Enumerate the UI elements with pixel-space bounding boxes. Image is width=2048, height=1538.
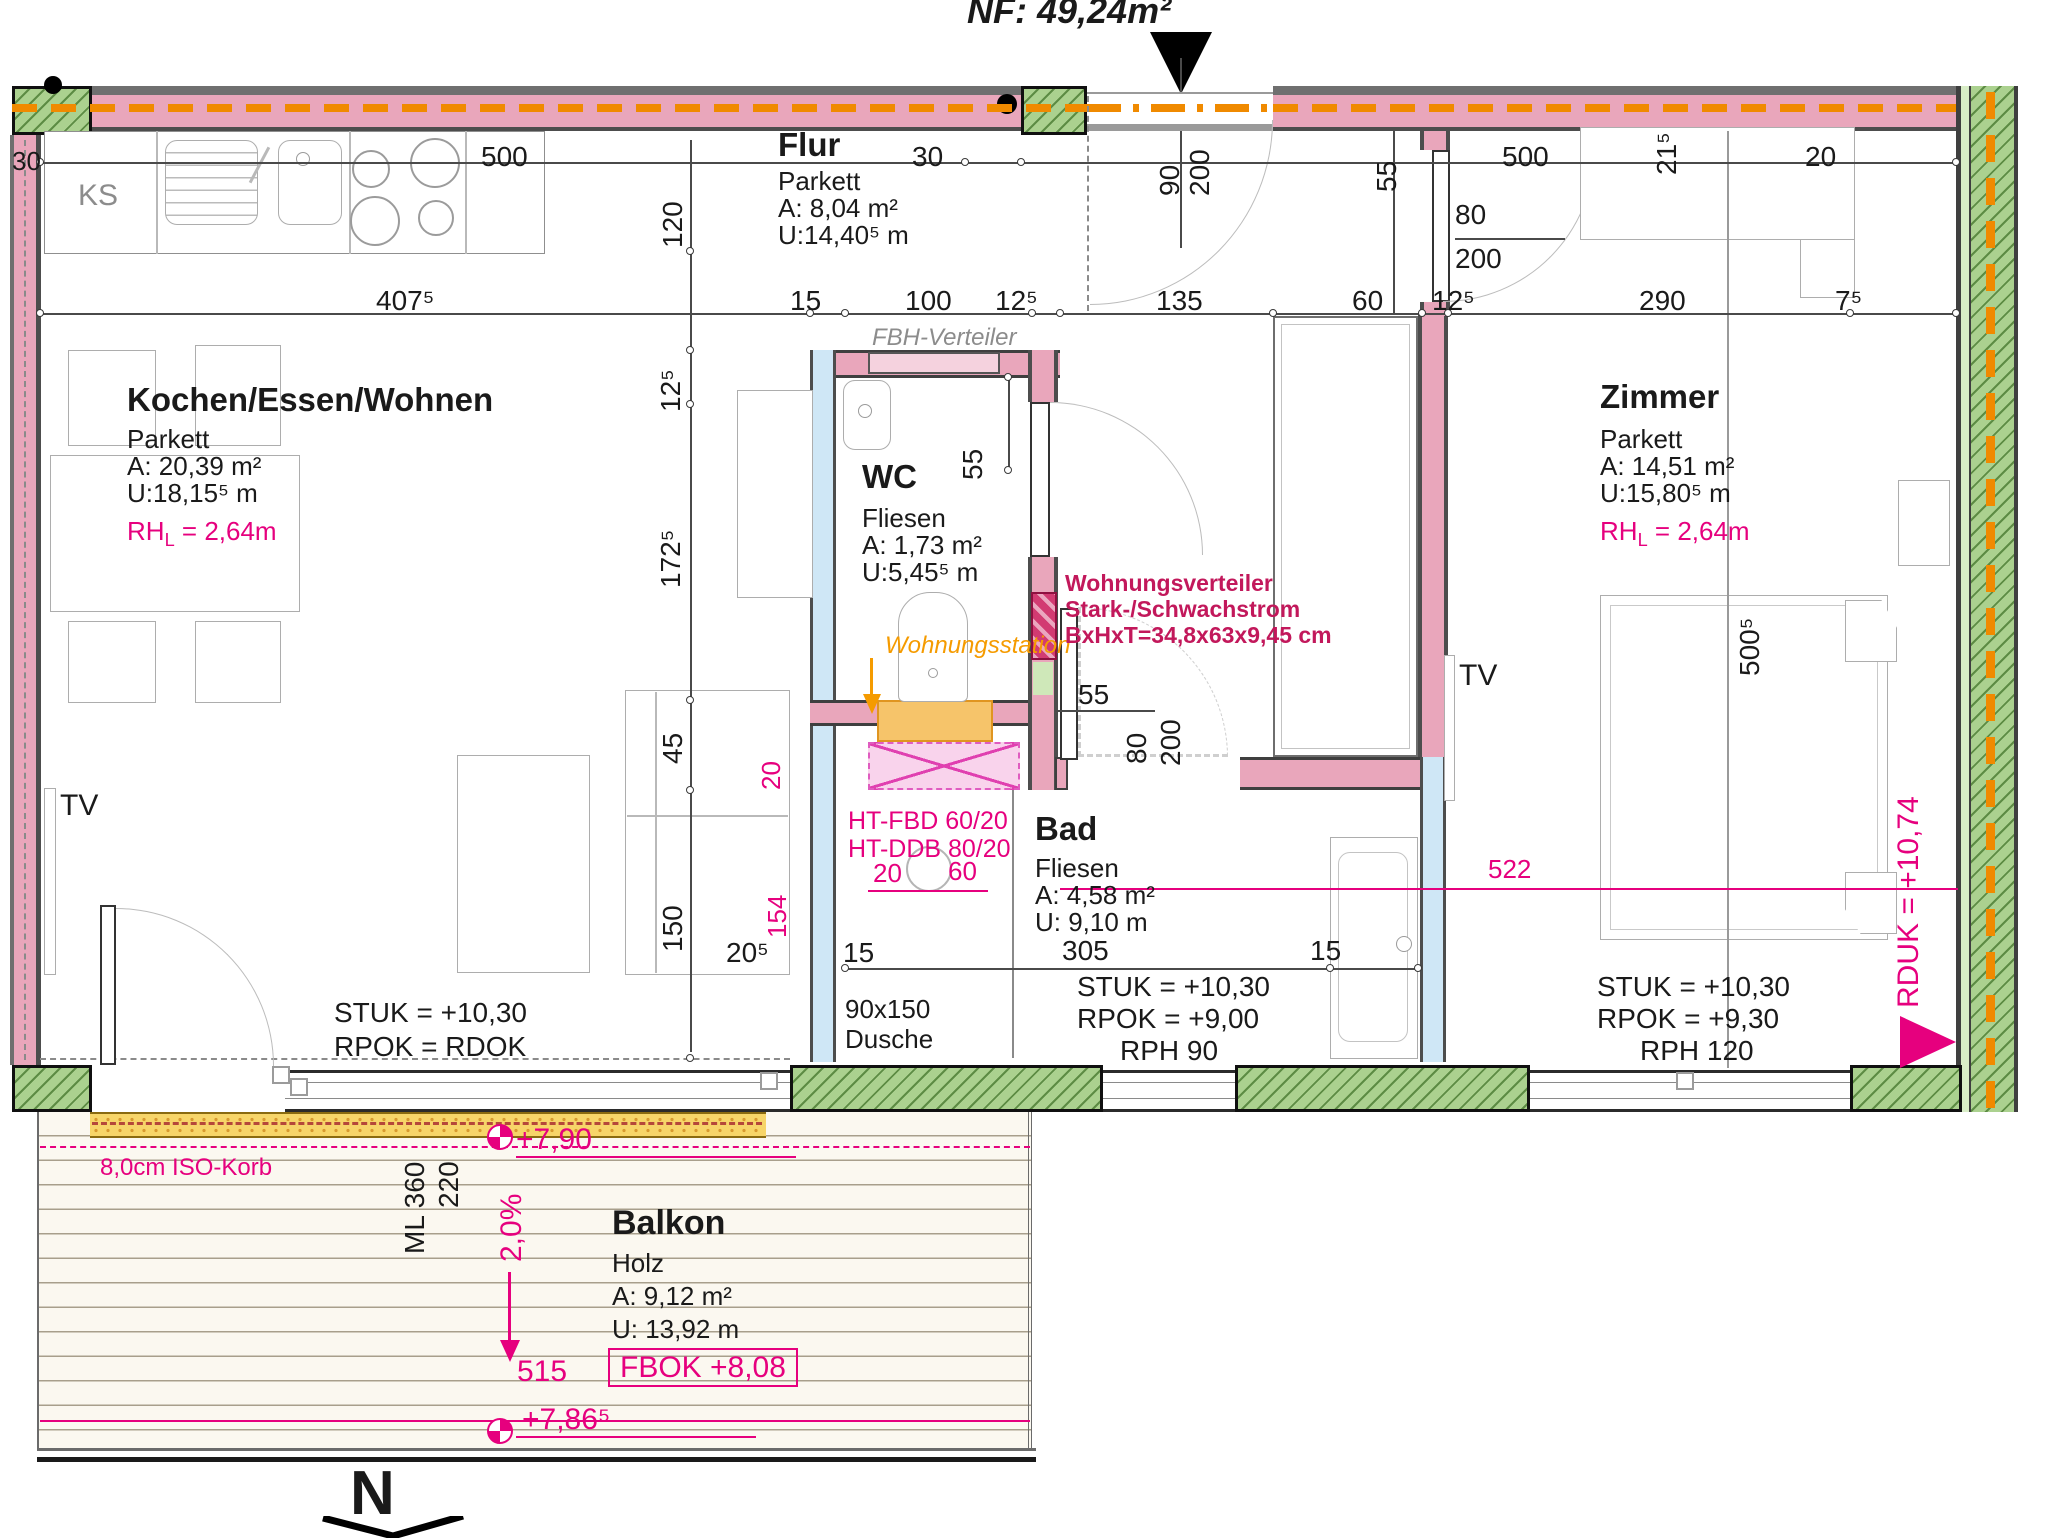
dim-45: 45: [658, 733, 687, 764]
wohnungsstation-arrow-head: [863, 694, 881, 714]
rduk-label: RDUK = +10,74: [1893, 796, 1924, 1008]
dim-tick: [1418, 309, 1426, 317]
room-zimmer-rh: RHL = 2,64m: [1600, 518, 1750, 550]
dim-frac-line: [1455, 238, 1565, 240]
fbh-label: FBH-Verteiler: [872, 326, 1016, 351]
room-zimmer-perimeter: U:15,80⁵ m: [1600, 480, 1731, 507]
room-wohnen-floor: Parkett: [127, 426, 209, 453]
entry-axis-dashed: [1087, 96, 1089, 311]
level-7865: +7,86⁵: [522, 1404, 610, 1435]
dim-125-a: 12⁵: [995, 286, 1038, 315]
dim-220: 220: [434, 1161, 463, 1208]
shower-label: Dusche: [845, 1026, 933, 1053]
room-bad-floor: Fliesen: [1035, 855, 1119, 882]
dim-100: 100: [905, 286, 952, 315]
window-frame-mark: [1676, 1072, 1694, 1090]
dim-tick: [1017, 158, 1025, 166]
dim-154: 154: [764, 895, 791, 938]
floor-plan: NF: 49,24m²: [0, 0, 2048, 1538]
dim-tick: [686, 1054, 694, 1062]
verteiler-note-3: BxHxT=34,8x63x9,45 cm: [1065, 624, 1332, 648]
fridge-label: KS: [78, 180, 118, 211]
level-790-line: [516, 1156, 796, 1158]
room-flur-title: Flur: [778, 128, 840, 162]
dim-tick: [686, 346, 694, 354]
room-bad-title: Bad: [1035, 812, 1097, 846]
room-flur-floor: Parkett: [778, 168, 860, 195]
kitchen-divider: [465, 131, 467, 254]
axis-orange-line-top-left: [12, 104, 1087, 112]
wohnungsstation-arrow-line: [870, 658, 873, 696]
sofa-cushion-line: [627, 815, 788, 817]
axis-orange-line-top-right: [1273, 104, 2016, 112]
dim-1725: 172⁵: [656, 530, 685, 588]
dim-tick: [1414, 964, 1422, 972]
wall-left-axis: [24, 140, 26, 1060]
dim-tick: [1952, 309, 1960, 317]
wall-bad-top: [1240, 757, 1422, 790]
dining-chair: [68, 621, 156, 703]
toilet-detail: [928, 668, 938, 678]
room-wohnen-title: Kochen/Essen/Wohnen: [127, 383, 493, 417]
room-wc-title: WC: [862, 460, 917, 494]
dim-215: 21⁵: [1652, 132, 1681, 175]
dim-500-kitchen: 500: [481, 142, 528, 171]
dim-tick: [686, 247, 694, 255]
room-wohnen-area: A: 20,39 m²: [127, 453, 261, 480]
dim-ml360: ML 360: [400, 1162, 429, 1254]
axis-orange-line-entry: [1087, 104, 1273, 112]
dim-15-a: 15: [843, 938, 874, 967]
dim-55-flur: 55: [1372, 161, 1401, 192]
dim-tick: [686, 696, 694, 704]
cooktop-burner: [418, 200, 454, 236]
pillow: [1845, 600, 1897, 662]
room-flur-perimeter: U:14,40⁵ m: [778, 222, 909, 249]
wc-sink-drain: [858, 404, 872, 418]
faucet-icon: [296, 152, 310, 166]
dim-80-zimmerdoor: 80: [1455, 200, 1486, 229]
room-flur-area: A: 8,04 m²: [778, 195, 898, 222]
room-balkon-floor: Holz: [612, 1250, 664, 1277]
wall-zimmer-door-stub-top: [1420, 131, 1450, 150]
north-arrow-icon: [318, 1516, 468, 1538]
dim-55-wc: 55: [958, 449, 987, 480]
dim-line-522: [1060, 888, 1958, 890]
tall-cabinet: [737, 390, 813, 598]
wohnen-rpok: RPOK = RDOK: [334, 1032, 526, 1061]
window-bad: [1103, 1070, 1235, 1112]
level-7865-line: [516, 1436, 756, 1438]
dim-75: 7⁵: [1835, 286, 1862, 315]
dim-tick: [1269, 309, 1277, 317]
coffee-table: [457, 755, 590, 973]
room-zimmer-area: A: 14,51 m²: [1600, 453, 1734, 480]
iso-korb-strip: [90, 1112, 766, 1138]
door-balcony-swing: [116, 908, 274, 1066]
iso-axis-dashed: [92, 1122, 762, 1125]
room-zimmer-floor: Parkett: [1600, 426, 1682, 453]
bad-tap-icon: [1396, 936, 1412, 952]
cooktop-burner: [350, 196, 400, 246]
dim-120: 120: [658, 201, 687, 248]
zimmer-rpok: RPOK = +9,30: [1597, 1004, 1779, 1033]
wall-wc-right-upper: [1028, 350, 1058, 402]
dim-60: 60: [1352, 286, 1383, 315]
wall-corner-block-bottom-left: [12, 1065, 92, 1112]
dim-5005: 500⁵: [1735, 618, 1764, 676]
wall-bottom-green-3: [1850, 1065, 1962, 1112]
dim-line-left-col: [690, 140, 692, 1052]
room-wohnen-rh: RHL = 2,64m: [127, 518, 277, 550]
dim-500-zimmer: 500: [1502, 142, 1549, 171]
room-bad-perimeter: U: 9,10 m: [1035, 909, 1148, 936]
window-frame-mark: [290, 1078, 308, 1096]
nightstand: [1898, 480, 1950, 566]
ht-note-2: HT-DDB 80/20: [848, 836, 1011, 862]
dim-15-b: 15: [1310, 936, 1341, 965]
dim-200-baddoor: 200: [1156, 719, 1185, 766]
level-marker-7865: [487, 1418, 513, 1444]
dim-line-wc55: [1008, 377, 1010, 472]
room-wc-floor: Fliesen: [862, 505, 946, 532]
dim-30-entry: 30: [912, 142, 943, 171]
room-zimmer-title: Zimmer: [1600, 380, 1719, 414]
dim-20-ht: 20: [873, 860, 902, 887]
tv-zimmer: [1444, 655, 1455, 801]
dim-tick: [1952, 158, 1960, 166]
level-790: +7,90: [516, 1124, 592, 1155]
door-balcony-leaf: [100, 905, 116, 1065]
zimmer-stuk: STUK = +10,30: [1597, 972, 1790, 1001]
wall-bottom-green-1: [790, 1065, 1103, 1112]
bad-rph: RPH 90: [1120, 1036, 1218, 1065]
kitchen-divider: [349, 131, 351, 254]
dim-line-bad-door: [1055, 710, 1155, 712]
tv-living: [44, 788, 56, 975]
dim-55-baddoor: 55: [1078, 680, 1109, 709]
shower-size-label: 90x150: [845, 996, 930, 1023]
wohnungsstation-label: Wohnungsstation: [885, 634, 1070, 659]
room-wc-perimeter: U:5,45⁵ m: [862, 559, 978, 586]
dim-tick: [1004, 466, 1012, 474]
dim-125-left: 12⁵: [656, 369, 685, 412]
sink-drainboard: [165, 140, 258, 225]
fbh-distributor-box: [868, 352, 1000, 374]
wohnungsstation-box: [877, 700, 993, 742]
dim-20-magenta: 20: [758, 761, 785, 790]
dim-205: 20⁵: [726, 938, 769, 967]
dim-tick: [1056, 309, 1064, 317]
ht-pipes-box: [868, 742, 1020, 790]
dim-tick: [1004, 373, 1012, 381]
iso-korb-label: 8,0cm ISO-Korb: [100, 1156, 272, 1181]
dim-515: 515: [517, 1356, 567, 1387]
dim-290: 290: [1639, 286, 1686, 315]
dim-30-left: 30: [12, 148, 41, 175]
fbok-box: FBOK +8,08: [608, 1348, 798, 1387]
dim-tick: [841, 309, 849, 317]
slope-label: 2,0%: [496, 1194, 527, 1262]
window-frame-mark: [760, 1072, 778, 1090]
door-wc-swing: [1050, 402, 1203, 555]
tv-zimmer-label: TV: [1459, 660, 1497, 691]
fbok-label: FBOK +8,08: [620, 1351, 786, 1384]
sink-basin: [278, 140, 342, 225]
dim-20-topright: 20: [1805, 142, 1836, 171]
dim-tick: [36, 309, 44, 317]
dim-tick: [686, 786, 694, 794]
wall-bottom-green-2: [1235, 1065, 1530, 1112]
dim-tick: [961, 158, 969, 166]
dim-15: 15: [790, 286, 821, 315]
door-entry-swing: [1090, 120, 1273, 305]
dim-line-flur55: [1393, 131, 1395, 313]
shower-partition: [1012, 790, 1014, 1058]
dim-entry-90: 90: [1155, 165, 1184, 196]
balcony-edge: [37, 1448, 1036, 1462]
wall-bad-top-stub-left: [1055, 757, 1068, 790]
room-bad-area: A: 4,58 m²: [1035, 882, 1155, 909]
dining-chair: [195, 621, 281, 703]
verteiler-note-2: Stark-/Schwachstrom: [1065, 598, 1300, 622]
room-wc-area: A: 1,73 m²: [862, 532, 982, 559]
dim-4075: 407⁵: [376, 286, 434, 315]
window-living: [285, 1070, 790, 1112]
room-balkon-title: Balkon: [612, 1206, 725, 1241]
door-wc-leaf: [1030, 402, 1050, 557]
tv-living-label: TV: [60, 790, 98, 821]
room-wohnen-perimeter: U:18,15⁵ m: [127, 480, 258, 507]
dim-tick: [686, 400, 694, 408]
dim-522: 522: [1488, 856, 1531, 883]
room-balkon-area: A: 9,12 m²: [612, 1283, 732, 1310]
zimmer-rph: RPH 120: [1640, 1036, 1754, 1065]
zimmer-axis-line: [1727, 131, 1729, 1068]
wall-right-orange-axis: [1986, 92, 1995, 1108]
rduk-arrow-icon: [1900, 1016, 1956, 1068]
plan-title-net-area: NF: 49,24m²: [967, 0, 1171, 29]
wall-bad-zimmer-install: [1420, 757, 1446, 1062]
dim-line-ht: [868, 890, 988, 892]
slope-arrow-line: [508, 1272, 511, 1342]
dim-entry-200: 200: [1185, 149, 1214, 196]
dim-150: 150: [658, 905, 687, 952]
wall-liner-green: [1033, 662, 1053, 695]
dim-80-baddoor: 80: [1122, 733, 1151, 764]
bad-stuk: STUK = +10,30: [1077, 972, 1270, 1001]
kitchen-divider: [156, 131, 158, 254]
window-frame-mark: [272, 1066, 290, 1084]
dim-200-zimmerdoor: 200: [1455, 244, 1502, 273]
dim-125-b: 12⁵: [1432, 286, 1475, 315]
verteiler-note-1: Wohnungsverteiler: [1065, 572, 1273, 596]
dim-135: 135: [1156, 286, 1203, 315]
cooktop-burner: [352, 150, 390, 188]
dim-305: 305: [1062, 936, 1109, 965]
level-marker-790: [487, 1124, 513, 1150]
bad-rpok: RPOK = +9,00: [1077, 1004, 1259, 1033]
ht-note-1: HT-FBD 60/20: [848, 808, 1008, 834]
room-balkon-perimeter: U: 13,92 m: [612, 1316, 739, 1343]
flur-closet-inner: [1281, 324, 1410, 749]
wohnen-stuk: STUK = +10,30: [334, 998, 527, 1027]
wall-junction-dot-left: [44, 76, 62, 94]
